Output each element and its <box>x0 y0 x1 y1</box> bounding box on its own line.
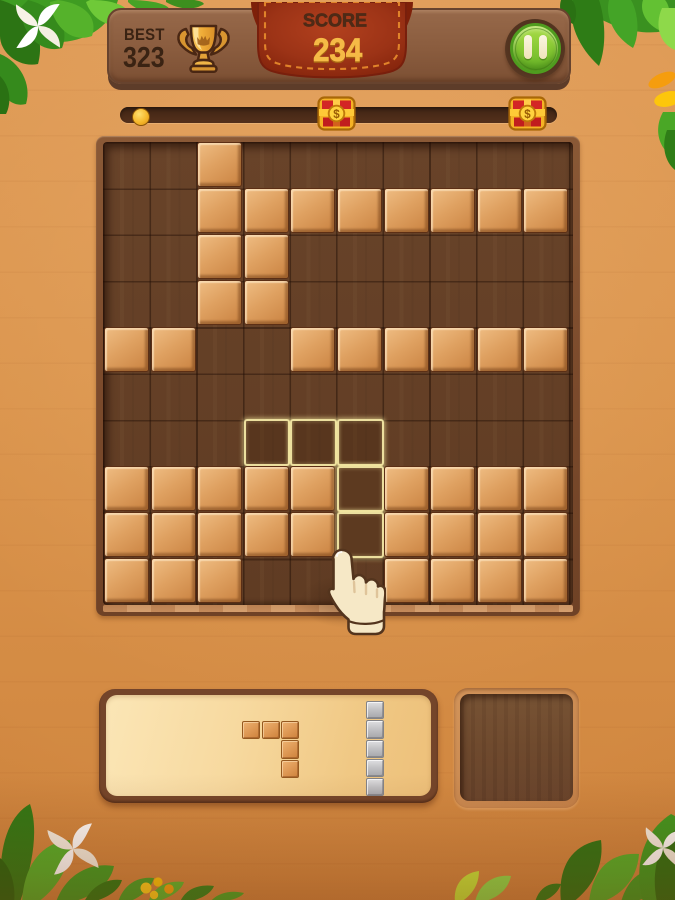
svg-text:234: 234 <box>313 32 362 68</box>
svg-text:SCORE: SCORE <box>303 11 367 31</box>
svg-text:$: $ <box>333 109 340 121</box>
svg-text:$: $ <box>524 109 531 121</box>
